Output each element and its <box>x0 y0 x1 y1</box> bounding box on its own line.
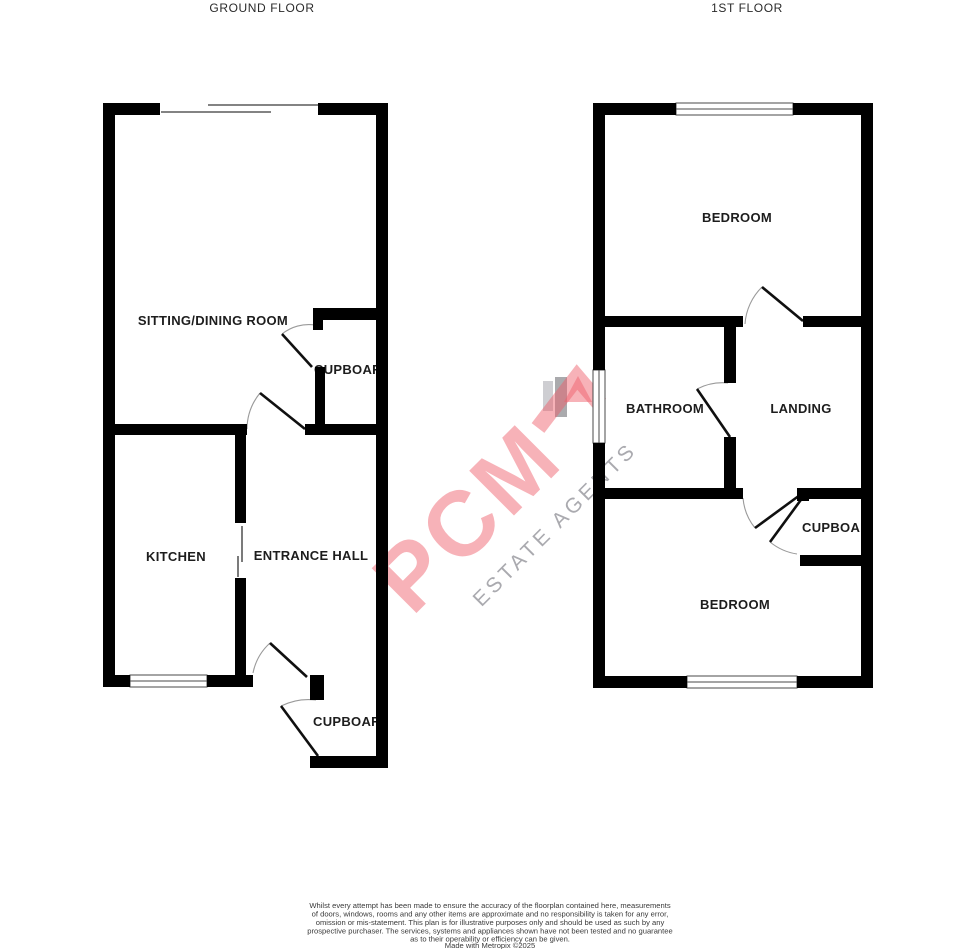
door-leaf <box>762 287 803 321</box>
wall <box>315 367 325 424</box>
disclaimer: Whilst every attempt has been made to en… <box>307 901 672 949</box>
window <box>130 675 207 687</box>
wall <box>103 103 160 115</box>
wall <box>107 424 247 435</box>
room-label-bedroom-front: BEDROOM <box>702 210 772 225</box>
room-label-bathroom: BATHROOM <box>626 401 704 416</box>
window <box>687 676 797 688</box>
wall <box>593 676 687 688</box>
door-swing-arc <box>745 287 762 324</box>
room-label-kitchen: KITCHEN <box>146 549 206 564</box>
door-swing-arc <box>697 383 728 389</box>
wall <box>593 103 605 370</box>
wall <box>803 316 873 327</box>
wall <box>305 424 388 435</box>
wall <box>861 103 873 688</box>
wall <box>797 676 873 688</box>
door-swing-arc <box>247 393 260 429</box>
wall <box>313 308 323 330</box>
wall <box>318 103 388 115</box>
ground-floor-title: GROUND FLOOR <box>209 1 314 15</box>
wall <box>793 103 873 115</box>
door-swing-arc <box>281 700 316 706</box>
room-label-entrance-hall: ENTRANCE HALL <box>254 548 368 563</box>
wall <box>310 756 388 768</box>
wall <box>207 675 253 687</box>
door-leaf <box>282 334 312 367</box>
wall <box>593 316 743 327</box>
door-swing-arc <box>770 542 797 554</box>
room-label-bedroom-back: BEDROOM <box>700 597 770 612</box>
wall <box>724 437 736 488</box>
room-label-sitting-dining: SITTING/DINING ROOM <box>138 313 288 328</box>
ground-floor-plan: SITTING/DINING ROOM CUPBOARD KITCHEN ENT… <box>103 103 392 768</box>
wall <box>800 555 873 566</box>
window <box>593 370 605 443</box>
wall <box>235 434 246 523</box>
wall <box>376 103 388 768</box>
wall <box>313 308 388 320</box>
wall <box>724 327 736 383</box>
first-floor-title: 1ST FLOOR <box>711 1 783 15</box>
window <box>676 103 793 115</box>
wall <box>103 103 115 687</box>
first-floor-plan: BEDROOM BATHROOM LANDING CUPBOARD BEDROO… <box>593 103 880 688</box>
wall <box>103 675 130 687</box>
door-leaf <box>270 643 307 677</box>
wall <box>593 103 676 115</box>
room-label-landing: LANDING <box>770 401 831 416</box>
wall-door-hinge <box>797 488 809 501</box>
wall <box>593 443 605 688</box>
wall <box>235 578 246 675</box>
floorplan-page: PCM ESTATE AGENTS SIT <box>0 0 980 949</box>
door-leaf <box>260 393 305 429</box>
floorplan-svg: PCM ESTATE AGENTS SIT <box>0 0 980 949</box>
wall <box>310 675 324 700</box>
door-swing-arc <box>743 498 755 528</box>
door-swing-arc <box>253 643 270 673</box>
wall <box>593 488 743 499</box>
watermark-house-logo <box>538 376 600 428</box>
disclaimer-line: Made with Metropix ©2025 <box>445 941 535 949</box>
